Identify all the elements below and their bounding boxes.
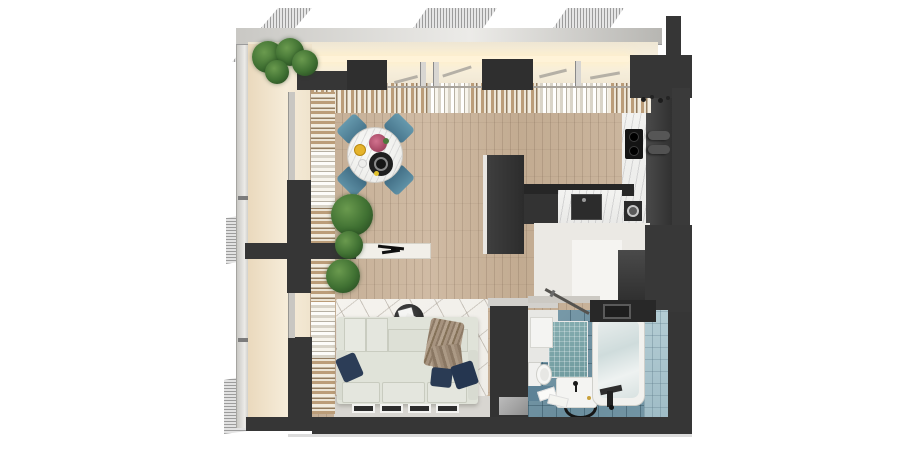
- wall-right-upper: [672, 88, 690, 230]
- wall-bottom-shadow: [288, 434, 692, 437]
- potted-plant: [326, 259, 360, 293]
- counter-decor: [650, 95, 654, 99]
- picture-frame: [408, 404, 431, 413]
- picture-frame: [436, 404, 459, 413]
- bathroom-wall-tiles: [644, 310, 668, 420]
- counter-decor: [658, 98, 663, 103]
- shower-accessory: [609, 405, 614, 410]
- fruit-bowl: [354, 144, 366, 156]
- window-post: [433, 62, 439, 88]
- bathroom-wall-cabinet: [530, 317, 553, 348]
- window-post: [575, 61, 581, 88]
- wall-bottom: [312, 417, 692, 434]
- window-post: [420, 62, 426, 88]
- basin-ring: [627, 205, 639, 217]
- cabinet-white-edge: [483, 155, 487, 254]
- flower-leaf: [383, 138, 389, 144]
- washer-lid: [603, 304, 631, 319]
- picture-frame: [352, 404, 375, 413]
- kitchen-sink: [571, 194, 602, 220]
- sink-faucet: [582, 198, 586, 202]
- fridge-handle: [648, 131, 670, 140]
- balcony-door-west: [288, 92, 295, 180]
- wall-southwest-arm: [246, 417, 312, 431]
- railing-post: [238, 196, 248, 200]
- kitchen-cabinet-dark: [524, 194, 558, 224]
- picture-frame: [380, 404, 403, 413]
- wall-stub-top: [666, 16, 681, 57]
- door-track: [533, 86, 630, 88]
- vanity-faucet-stem: [575, 385, 577, 392]
- gold-accessory: [587, 396, 591, 400]
- sofa-back-panel: [366, 318, 388, 352]
- wall-top-b: [482, 59, 533, 90]
- small-plate: [358, 159, 367, 168]
- railing-post: [238, 338, 248, 342]
- burner: [629, 146, 639, 156]
- curtains-left-white-section: [311, 302, 335, 358]
- counter-decor: [641, 97, 646, 102]
- potted-plant: [331, 194, 373, 236]
- sofa-seat-cushion: [342, 382, 380, 403]
- sofa-seat-cushion: [382, 382, 425, 403]
- balcony-corner-plant: [292, 50, 318, 76]
- balcony-corner-plant: [265, 60, 289, 84]
- door-track: [387, 86, 482, 88]
- counter-decor: [666, 96, 670, 100]
- teapot: [374, 157, 388, 171]
- wall-west-pillar: [287, 180, 311, 293]
- toilet-seat: [540, 368, 549, 381]
- lemon: [374, 171, 379, 176]
- potted-plant: [335, 231, 363, 259]
- wall-top-a-raised: [347, 60, 387, 90]
- fridge-handle: [648, 145, 670, 154]
- kitchen-tall-cabinet-left: [487, 155, 524, 254]
- sofa-back-panel: [344, 318, 366, 352]
- console-decor: [391, 247, 396, 252]
- curtains-left-white-section: [311, 150, 335, 208]
- burner: [629, 132, 639, 142]
- mosaic-panel: [548, 321, 588, 378]
- floor-plan-render: [0, 0, 900, 450]
- navy-pillow: [430, 367, 453, 388]
- wall-gray-panel: [499, 397, 528, 415]
- balcony-door-west: [288, 293, 295, 338]
- wall-right-bathroom: [668, 312, 692, 422]
- hallway-bright-patch: [572, 240, 622, 300]
